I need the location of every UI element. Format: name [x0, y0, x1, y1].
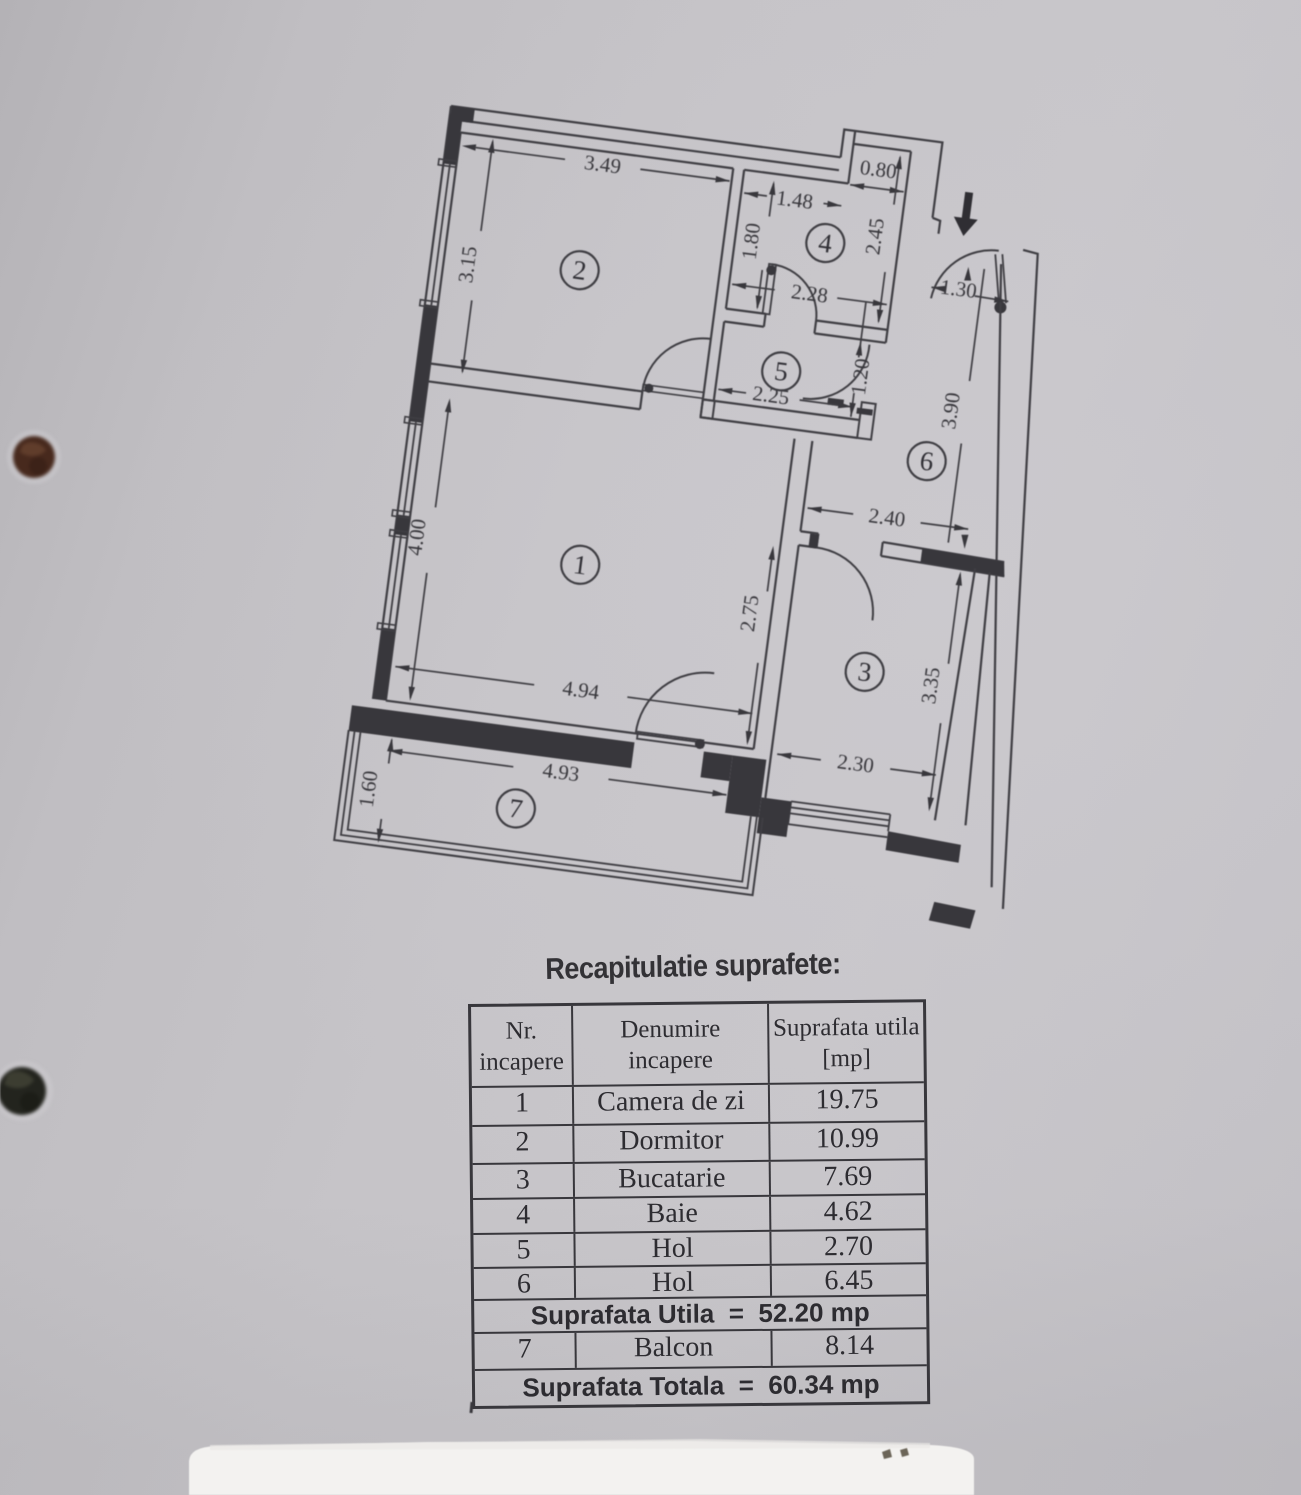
svg-text:3.15: 3.15	[453, 245, 482, 285]
svg-text:2.40: 2.40	[867, 503, 907, 532]
svg-text:1: 1	[572, 549, 589, 581]
svg-text:6: 6	[918, 445, 935, 477]
svg-text:2.45: 2.45	[860, 217, 889, 257]
svg-text:3: 3	[856, 656, 873, 688]
svg-text:2.30: 2.30	[836, 749, 876, 778]
svg-text:4.00: 4.00	[402, 517, 431, 557]
svg-text:7: 7	[507, 793, 524, 825]
svg-text:0.80: 0.80	[859, 155, 899, 184]
svg-text:3.90: 3.90	[936, 391, 965, 431]
svg-text:1.48: 1.48	[775, 185, 815, 214]
svg-text:3.49: 3.49	[583, 150, 623, 179]
svg-text:2.28: 2.28	[790, 279, 830, 308]
svg-text:1.30: 1.30	[939, 275, 979, 304]
svg-text:2.75: 2.75	[735, 593, 764, 633]
svg-text:1.80: 1.80	[737, 222, 766, 262]
svg-text:1.20: 1.20	[846, 357, 875, 397]
svg-text:5: 5	[773, 356, 790, 388]
svg-text:4.94: 4.94	[561, 676, 601, 705]
svg-text:1.60: 1.60	[354, 769, 383, 809]
svg-text:4.93: 4.93	[541, 758, 581, 787]
svg-text:4: 4	[817, 227, 835, 259]
svg-text:3.35: 3.35	[916, 666, 945, 706]
svg-text:2: 2	[571, 254, 588, 286]
